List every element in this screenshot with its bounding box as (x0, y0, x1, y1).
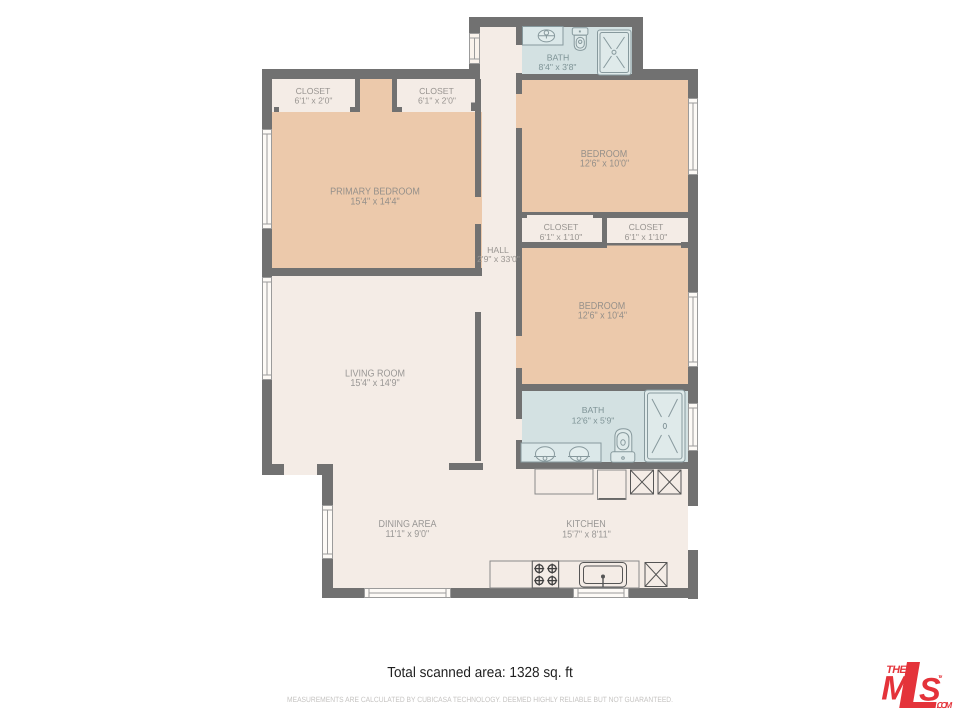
svg-text:BATH: BATH (582, 405, 605, 415)
svg-text:6'1" x 2'0": 6'1" x 2'0" (295, 95, 333, 105)
svg-text:11'1" x 9'0": 11'1" x 9'0" (385, 529, 429, 540)
svg-text:6'1" x 1'10": 6'1" x 1'10" (625, 232, 668, 242)
svg-text:12'6" x 10'0": 12'6" x 10'0" (580, 159, 630, 170)
svg-text:6'1" x 1'10": 6'1" x 1'10" (540, 232, 583, 242)
svg-text:8'4" x 3'8": 8'4" x 3'8" (539, 62, 577, 72)
svg-text:15'4" x 14'9": 15'4" x 14'9" (350, 378, 400, 389)
svg-text:2'9" x 33'0": 2'9" x 33'0" (477, 254, 520, 264)
svg-text:15'4" x 14'4": 15'4" x 14'4" (350, 197, 400, 208)
svg-text:Total scanned area: 1328 sq. f: Total scanned area: 1328 sq. ft (387, 665, 573, 681)
svg-text:CLOSET: CLOSET (629, 222, 664, 232)
svg-text:12'6" x 10'4": 12'6" x 10'4" (578, 311, 628, 322)
svg-text:.COM: .COM (937, 700, 953, 710)
svg-text:12'6" x 5'9": 12'6" x 5'9" (572, 416, 615, 426)
svg-text:MEASUREMENTS ARE CALCULATED BY: MEASUREMENTS ARE CALCULATED BY CUBICASA … (287, 695, 673, 704)
svg-text:CLOSET: CLOSET (544, 222, 579, 232)
svg-text:TM: TM (938, 675, 943, 679)
svg-text:6'1" x 2'0": 6'1" x 2'0" (418, 95, 456, 105)
svg-text:15'7" x 8'11": 15'7" x 8'11" (562, 529, 611, 540)
